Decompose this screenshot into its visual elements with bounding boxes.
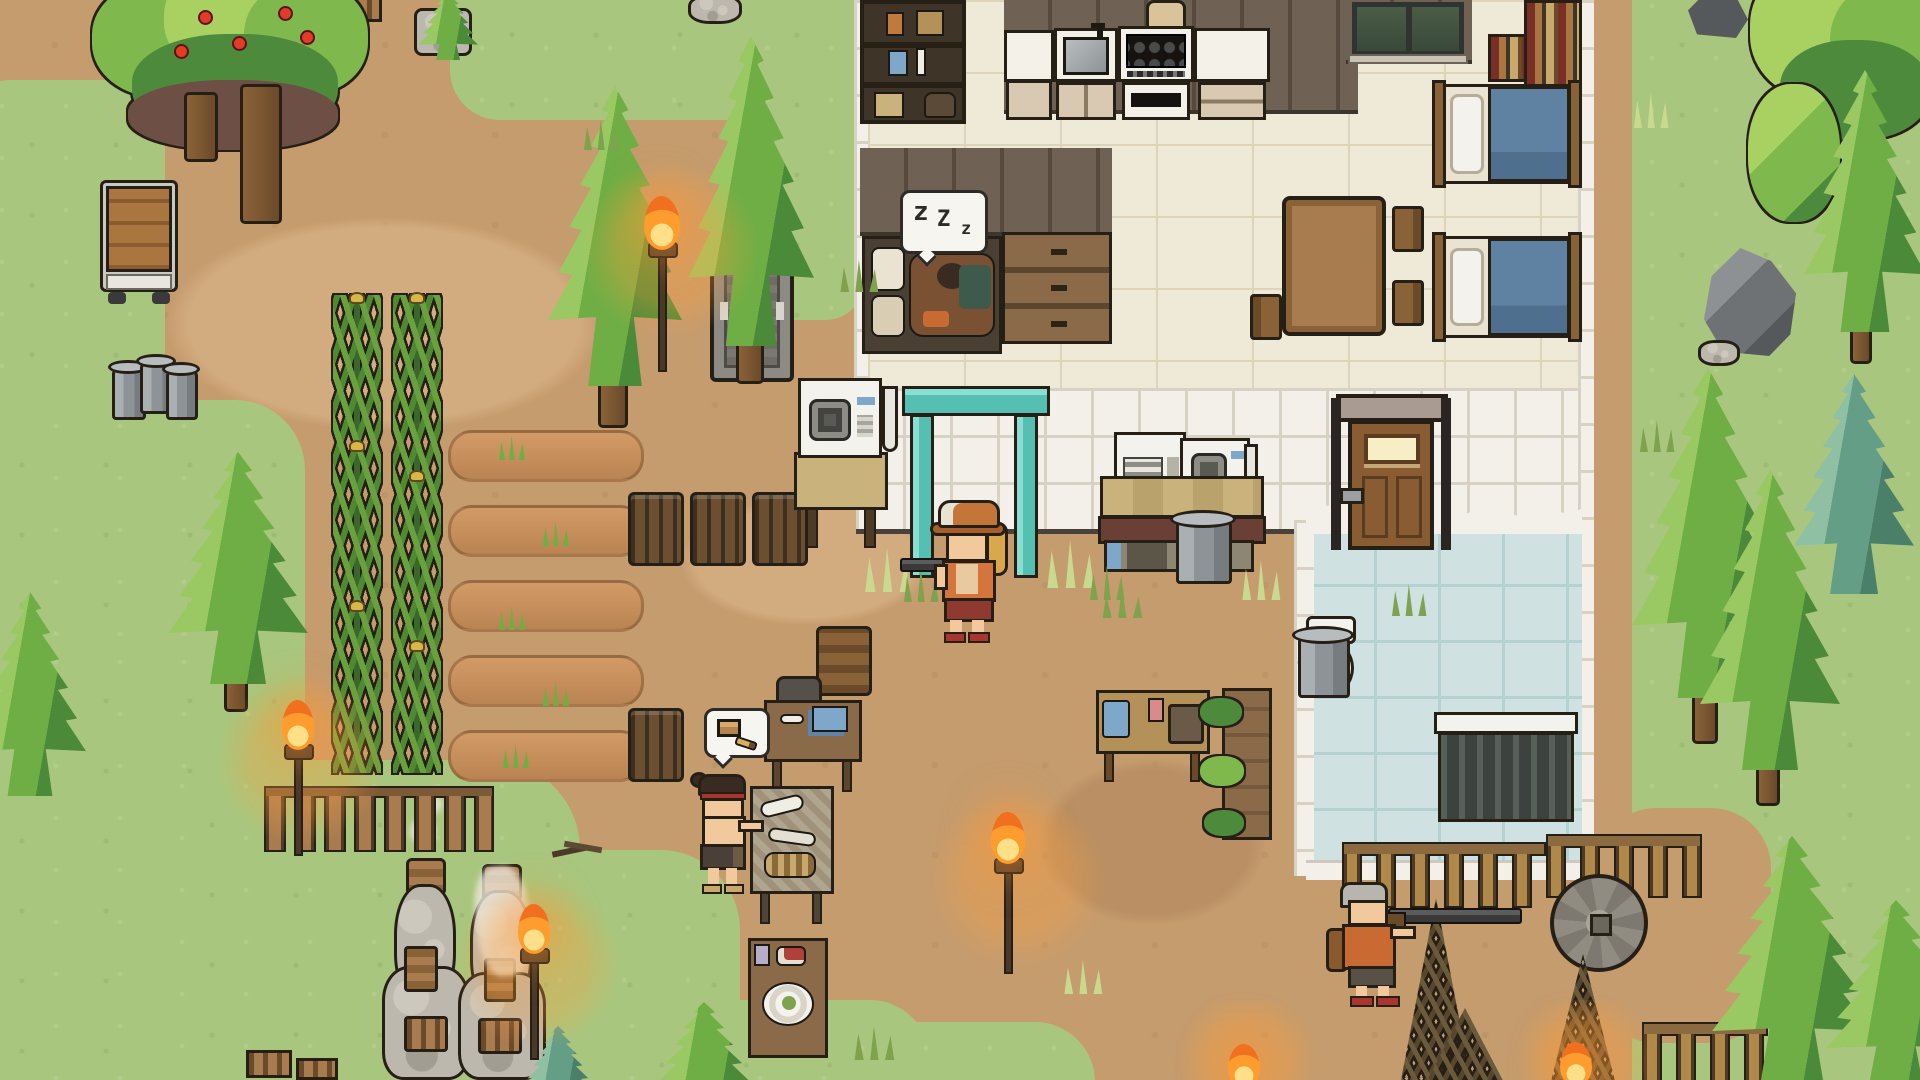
dining-chair[interactable] (1392, 280, 1424, 326)
bone-pile[interactable] (552, 840, 604, 864)
kiln-grate (404, 1016, 448, 1052)
vine-leaves (1200, 698, 1242, 726)
torch-flame (644, 196, 680, 250)
window-sill (1348, 54, 1468, 64)
oven-window (1131, 93, 1181, 107)
torch[interactable] (642, 196, 682, 376)
crafting-table[interactable] (764, 676, 868, 792)
shoe (944, 632, 966, 643)
apple-trunk (184, 92, 218, 162)
corn-tassel (349, 600, 365, 612)
bed-pillow (1450, 94, 1484, 174)
torch-flame (518, 904, 550, 954)
sandal (702, 884, 722, 894)
door-post (1331, 398, 1341, 550)
grindstone-hub (1590, 914, 1612, 936)
arm (934, 564, 948, 590)
kitchen-drawers (1198, 82, 1266, 120)
apple (232, 36, 247, 51)
apple (278, 6, 293, 21)
table-leg (812, 892, 822, 924)
trash-can-east[interactable] (1298, 636, 1350, 698)
bed-footboard (1568, 80, 1582, 188)
kitchen-cabinet[interactable] (1004, 30, 1054, 82)
herb-sprig (782, 996, 796, 1010)
shoe (1376, 996, 1400, 1007)
tilled-row[interactable] (448, 580, 644, 632)
arm-extended (738, 820, 764, 832)
dresser-handle (1051, 321, 1067, 327)
apple (198, 10, 213, 25)
kiln-vent (404, 946, 438, 992)
cooktop (1126, 34, 1186, 68)
bathroom-grate-frame (1434, 712, 1578, 734)
dining-chair[interactable] (1392, 206, 1424, 252)
slatted-crate[interactable] (628, 492, 684, 566)
slatted-crate[interactable] (628, 708, 684, 782)
door-panel (1396, 476, 1422, 538)
rack-shelf (864, 42, 962, 48)
butcher-table[interactable] (748, 938, 832, 1080)
sleeper-orange-cloth (923, 311, 949, 327)
bathroom-grate[interactable] (1438, 732, 1574, 822)
window-mullion (1406, 7, 1412, 51)
shorts (1348, 966, 1396, 988)
window[interactable] (1352, 2, 1464, 56)
table-leg (842, 760, 852, 792)
ammo-thought-bubble (704, 708, 770, 758)
dining-table[interactable] (1282, 196, 1386, 336)
rock-northeast[interactable] (1688, 0, 1748, 38)
trash-can-house[interactable] (1176, 520, 1232, 584)
torch-flame (282, 700, 314, 750)
rack-item-box-orange (886, 12, 904, 36)
kitchen-sink-counter[interactable] (1054, 28, 1118, 82)
game-viewport: z Z z (0, 0, 1920, 1080)
sink-basin (1063, 37, 1109, 75)
sandal (724, 884, 744, 894)
cloth-blue (1102, 700, 1130, 738)
torch[interactable] (278, 700, 318, 860)
stove[interactable] (1118, 26, 1194, 82)
ac-fan (809, 399, 851, 441)
apple-tree[interactable] (88, 0, 388, 230)
corn-tassel (409, 640, 425, 652)
rack-item-bottle (916, 48, 926, 76)
door-post (1441, 398, 1451, 550)
rack-shelf (864, 82, 962, 88)
vine-leaves (1200, 756, 1244, 786)
sink-cabinet-base (1056, 82, 1116, 120)
wooden-crate[interactable] (296, 1058, 338, 1080)
grass-tuft (1042, 540, 1096, 588)
sewing-bench[interactable] (1096, 690, 1214, 786)
dresser-handle (1051, 285, 1067, 291)
shorts (700, 844, 746, 870)
air-conditioner-stand[interactable] (790, 372, 906, 552)
rack-item-sack (874, 92, 904, 118)
corn-tassel (409, 292, 425, 304)
bib (956, 564, 978, 594)
corn-tassel (349, 292, 365, 304)
dining-chair[interactable] (1250, 294, 1282, 340)
ac-leg (864, 504, 876, 548)
rope-coil (764, 852, 816, 878)
face (1348, 900, 1388, 926)
rock-small[interactable] (1698, 340, 1740, 366)
settler-sleeping[interactable] (909, 253, 995, 337)
door-lintel (1336, 394, 1448, 422)
corn-tassel (349, 440, 365, 452)
teal-frame-top (902, 386, 1050, 416)
torch[interactable] (988, 812, 1028, 978)
corn-tassel (409, 470, 425, 482)
oven-door[interactable] (1122, 82, 1190, 120)
door-handle (1340, 488, 1364, 504)
bench-leg (1190, 752, 1200, 782)
dresser-handle (1051, 249, 1067, 255)
bed-pillow (1450, 248, 1484, 326)
bone-scrap (780, 714, 804, 724)
ac-leg (806, 504, 818, 548)
bed-blanket (1488, 238, 1570, 336)
torch-flame (991, 812, 1025, 864)
trash-can[interactable] (166, 370, 198, 420)
bench-leg (1104, 752, 1114, 782)
cart-wheel (152, 292, 170, 304)
ac-unit (798, 378, 882, 458)
apple (174, 44, 189, 59)
tall-bookshelf[interactable] (1524, 0, 1582, 92)
rack-item-pots (924, 92, 956, 118)
ac-vent (857, 415, 873, 437)
kitchen-cabinet-base (1006, 80, 1052, 120)
settler-shooter[interactable] (1326, 882, 1530, 1016)
ac-drain-pipe (882, 386, 898, 452)
slab-handle (776, 302, 784, 320)
bed-blanket (1488, 86, 1570, 182)
nook-pillow (871, 295, 905, 337)
paper-pink (1148, 698, 1164, 722)
corn-crop[interactable] (393, 295, 441, 773)
tilled-row[interactable] (448, 430, 644, 482)
bathroom-floor (1306, 528, 1582, 876)
apple-canopy (88, 0, 388, 164)
sleeper-blanket (959, 265, 991, 309)
trash-can-lid (162, 362, 200, 376)
rack-item-box-blue (888, 50, 908, 76)
sleep-z: z (913, 199, 929, 225)
grass-blob-south-2 (830, 1022, 1095, 1080)
bush[interactable] (1748, 84, 1840, 222)
apple (300, 30, 315, 45)
bed-headboard (1432, 80, 1446, 188)
settler-crafter[interactable] (688, 772, 768, 898)
vine-leaves (1204, 810, 1244, 836)
shoe (968, 632, 990, 643)
bed[interactable] (1432, 80, 1582, 188)
grindstone[interactable] (1550, 874, 1648, 972)
vest-orange (1342, 924, 1396, 970)
tilled-row[interactable] (448, 730, 644, 782)
dresser[interactable] (1002, 232, 1112, 344)
torch[interactable] (514, 904, 554, 1064)
wooden-door[interactable] (1348, 420, 1434, 550)
arm (1390, 926, 1416, 939)
shorts (944, 598, 994, 622)
bed-headboard (1432, 232, 1446, 342)
faucet-spout (1091, 23, 1105, 28)
slatted-crate[interactable] (690, 492, 746, 566)
cowboy-hat (938, 500, 1000, 528)
ac-table (794, 452, 888, 510)
jar (754, 944, 770, 966)
bed[interactable] (1432, 232, 1582, 342)
kitchen-counter-2[interactable] (1194, 28, 1270, 82)
apple-trunk-main (240, 84, 282, 224)
ac-label (857, 397, 875, 405)
stove-knobs (1127, 71, 1185, 77)
trash-can-house-lid (1170, 510, 1236, 528)
door-window (1364, 434, 1420, 464)
cart-wheel (108, 292, 126, 304)
sleep-z: Z (937, 209, 950, 231)
bed-footboard (1568, 232, 1582, 342)
rifle (1388, 908, 1522, 924)
storage-rack[interactable] (860, 0, 966, 124)
blueprints (812, 706, 848, 732)
ammo-box-icon (717, 719, 741, 737)
door-panel (1362, 476, 1388, 538)
meat-cut (776, 946, 806, 966)
sleep-bubble: z Z z (900, 190, 988, 254)
sewing-machine (1168, 704, 1204, 744)
rack-item-crate (916, 10, 944, 36)
settler-cowgirl[interactable] (898, 500, 1020, 646)
wooden-crate[interactable] (246, 1050, 292, 1078)
sleep-z: z (961, 221, 971, 238)
cart-front (106, 274, 172, 290)
bullet-icon (734, 736, 758, 751)
trash-can-east-lid (1292, 626, 1354, 644)
shoe (1350, 996, 1374, 1007)
stone-pile-small[interactable] (688, 0, 742, 24)
